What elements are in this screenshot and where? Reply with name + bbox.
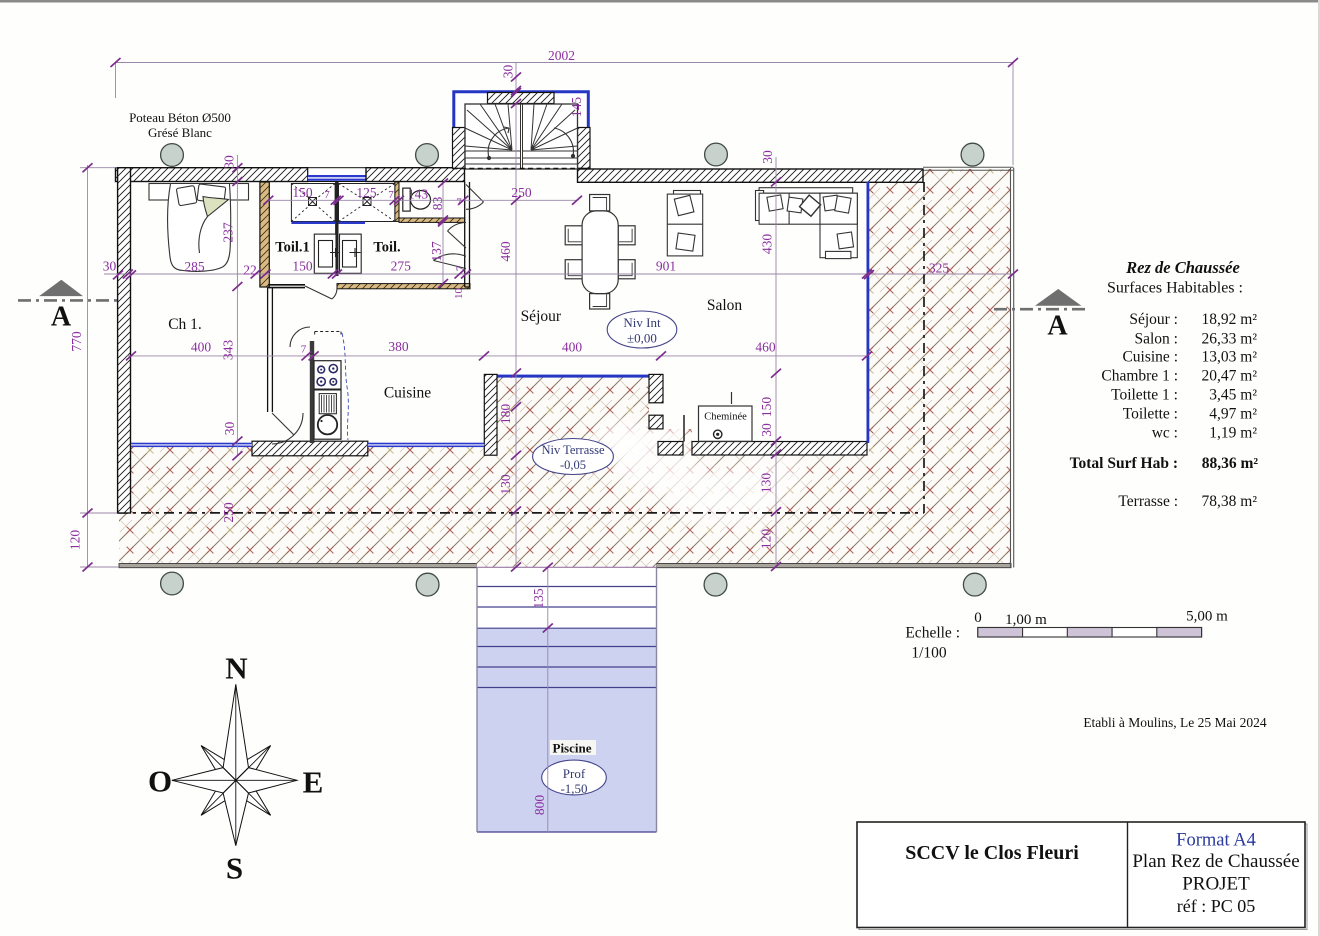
- svg-text:1,19 m²: 1,19 m²: [1209, 425, 1257, 442]
- svg-text:380: 380: [388, 339, 409, 354]
- svg-text:460: 460: [498, 241, 513, 262]
- svg-text:770: 770: [69, 331, 84, 352]
- svg-text:83: 83: [430, 197, 445, 211]
- svg-text:Toil.: Toil.: [373, 240, 400, 256]
- svg-text:O: O: [148, 764, 172, 799]
- svg-text:1,00 m: 1,00 m: [1005, 612, 1047, 628]
- svg-text:30: 30: [222, 422, 237, 436]
- svg-text:150: 150: [292, 185, 313, 200]
- svg-text:325: 325: [929, 261, 950, 276]
- svg-text:-1,50: -1,50: [560, 781, 587, 796]
- svg-text:Toil.1: Toil.1: [275, 240, 310, 256]
- svg-text:7: 7: [456, 197, 462, 209]
- svg-text:A: A: [51, 302, 72, 333]
- svg-text:901: 901: [656, 259, 676, 274]
- svg-text:Echelle :: Echelle :: [905, 625, 960, 642]
- svg-text:7: 7: [455, 265, 467, 271]
- svg-text:150: 150: [292, 259, 313, 274]
- svg-text:Prof: Prof: [563, 766, 586, 781]
- svg-text:250: 250: [511, 185, 532, 200]
- svg-text:88,36 m²: 88,36 m²: [1202, 455, 1259, 472]
- svg-text:Cuisine: Cuisine: [384, 385, 431, 402]
- svg-text:Séjour :: Séjour :: [1129, 311, 1178, 328]
- svg-text:-0,05: -0,05: [560, 458, 586, 472]
- svg-text:Niv Terrasse: Niv Terrasse: [541, 443, 605, 457]
- svg-text:Ch 1.: Ch 1.: [168, 316, 202, 333]
- svg-text:130: 130: [759, 473, 774, 494]
- svg-text:120: 120: [68, 530, 83, 551]
- svg-text:78,38 m²: 78,38 m²: [1202, 493, 1258, 510]
- svg-text:130: 130: [498, 474, 513, 495]
- svg-text:137: 137: [429, 241, 444, 262]
- svg-text:20,47 m²: 20,47 m²: [1202, 368, 1258, 385]
- svg-text:30: 30: [222, 155, 237, 169]
- svg-text:237: 237: [221, 222, 236, 243]
- svg-text:Etabli à Moulins, Le 25 Mai 20: Etabli à Moulins, Le 25 Mai 2024: [1083, 715, 1267, 730]
- svg-text:Toilette 1 :: Toilette 1 :: [1111, 387, 1178, 404]
- svg-text:125: 125: [356, 185, 377, 200]
- svg-text:30: 30: [501, 65, 516, 79]
- svg-text:120: 120: [759, 529, 774, 550]
- svg-text:Poteau Béton Ø500: Poteau Béton Ø500: [129, 110, 231, 125]
- svg-text:30: 30: [759, 423, 774, 437]
- svg-text:Salon :: Salon :: [1135, 331, 1179, 348]
- svg-text:460: 460: [755, 340, 776, 355]
- svg-text:S: S: [226, 851, 243, 886]
- svg-text:430: 430: [760, 234, 775, 255]
- svg-text:135: 135: [531, 588, 546, 609]
- svg-text:30: 30: [103, 259, 117, 274]
- svg-text:150: 150: [759, 397, 774, 418]
- svg-text:Piscine: Piscine: [553, 741, 592, 756]
- svg-text:30: 30: [760, 150, 775, 164]
- svg-text:26,33 m²: 26,33 m²: [1202, 331, 1258, 348]
- svg-text:5,00 m: 5,00 m: [1186, 609, 1228, 625]
- svg-text:Chambre 1 :: Chambre 1 :: [1101, 368, 1178, 385]
- svg-text:Séjour: Séjour: [521, 308, 562, 325]
- svg-text:Terrasse :: Terrasse :: [1118, 493, 1178, 510]
- svg-text:143: 143: [408, 187, 429, 202]
- svg-text:250: 250: [221, 502, 236, 523]
- svg-text:PROJET: PROJET: [1182, 874, 1250, 895]
- svg-text:3,45 m²: 3,45 m²: [1209, 387, 1257, 404]
- svg-text:275: 275: [391, 259, 412, 274]
- svg-text:400: 400: [562, 340, 583, 355]
- svg-text:400: 400: [191, 340, 212, 355]
- svg-text:Plan Rez de Chaussée: Plan Rez de Chaussée: [1132, 851, 1299, 872]
- svg-text:343: 343: [221, 340, 236, 361]
- svg-text:Cheminée: Cheminée: [704, 412, 747, 423]
- svg-text:7: 7: [301, 344, 307, 356]
- svg-text:réf : PC 05: réf : PC 05: [1177, 896, 1256, 916]
- svg-text:Format A4: Format A4: [1176, 831, 1256, 851]
- svg-text:Surfaces Habitables :: Surfaces Habitables :: [1107, 280, 1243, 297]
- svg-text:800: 800: [532, 795, 547, 816]
- svg-text:285: 285: [184, 259, 205, 274]
- svg-text:±0,00: ±0,00: [627, 331, 657, 346]
- svg-text:Cuisine :: Cuisine :: [1122, 349, 1178, 366]
- svg-text:N: N: [225, 651, 247, 686]
- svg-text:SCCV le Clos Fleuri: SCCV le Clos Fleuri: [905, 842, 1079, 864]
- svg-text:0: 0: [974, 610, 982, 626]
- svg-text:Rez de Chaussée: Rez de Chaussée: [1125, 258, 1240, 277]
- svg-text:Total Surf Hab :: Total Surf Hab :: [1070, 455, 1178, 472]
- svg-text:7: 7: [324, 189, 330, 201]
- svg-text:4,97 m²: 4,97 m²: [1209, 406, 1257, 423]
- svg-text:Salon: Salon: [707, 297, 743, 314]
- svg-text:180: 180: [498, 404, 513, 425]
- svg-text:wc :: wc :: [1152, 425, 1178, 442]
- svg-text:Niv Int: Niv Int: [623, 315, 661, 330]
- svg-text:10: 10: [453, 288, 465, 300]
- svg-text:E: E: [303, 765, 324, 800]
- svg-text:7: 7: [388, 189, 394, 201]
- svg-text:145: 145: [569, 97, 584, 118]
- svg-text:13,03 m²: 13,03 m²: [1202, 349, 1258, 366]
- svg-text:22: 22: [243, 263, 257, 278]
- svg-text:A: A: [1047, 311, 1068, 342]
- svg-text:2002: 2002: [548, 48, 575, 63]
- svg-text:Grésé Blanc: Grésé Blanc: [148, 125, 212, 140]
- svg-text:1/100: 1/100: [911, 645, 947, 662]
- svg-text:Toilette :: Toilette :: [1123, 406, 1178, 423]
- svg-text:18,92 m²: 18,92 m²: [1202, 311, 1258, 328]
